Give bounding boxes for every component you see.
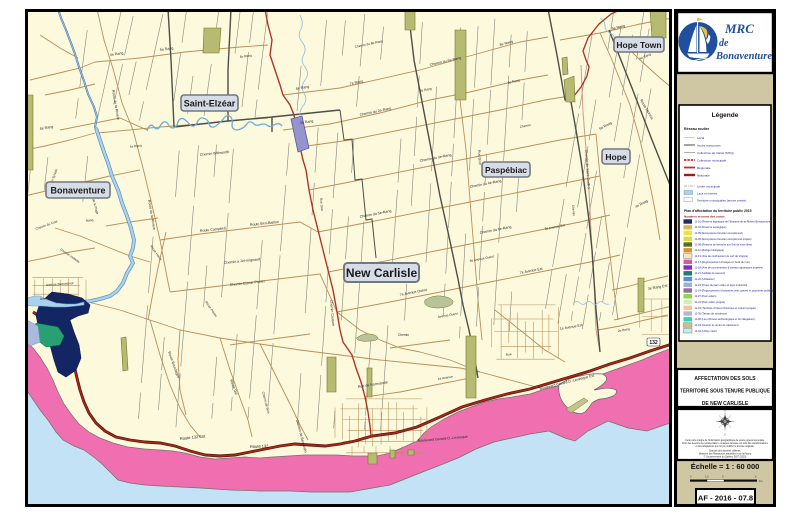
svg-text:AFFECTATION DES SOLS: AFFECTATION DES SOLS — [694, 376, 756, 382]
svg-text:11-33 (Territoire d'interet hi: 11-33 (Territoire d'interet historique e… — [695, 306, 757, 310]
svg-text:11-31 (Parc eolien projete): 11-31 (Parc eolien projete) — [695, 300, 726, 304]
svg-text:DE NEW CARLISLE: DE NEW CARLISLE — [702, 401, 749, 407]
svg-text:11-35 (Terrain de residence): 11-35 (Terrain de residence) — [695, 312, 728, 316]
svg-text:1,5: 1,5 — [705, 475, 709, 479]
svg-text:132: 132 — [649, 340, 658, 346]
svg-text:S: S — [724, 433, 726, 437]
svg-text:Chemin: Chemin — [398, 333, 409, 337]
svg-text:Hope Town: Hope Town — [616, 40, 661, 50]
svg-text:Collectrice municipale: Collectrice municipale — [697, 159, 727, 163]
svg-text:11-43 (Gravier et centre de tr: 11-43 (Gravier et centre de traitement) — [695, 323, 739, 327]
svg-text:11-13 (Aire de confinement du: 11-13 (Aire de confinement du cerf de Vi… — [695, 254, 749, 258]
svg-text:Échelle = 1 : 60 000: Échelle = 1 : 60 000 — [691, 462, 760, 471]
svg-text:Numéros et noms des zones: Numéros et noms des zones — [684, 215, 725, 219]
svg-text:MRC: MRC — [724, 21, 754, 36]
svg-text:TERRITOIRE SOUS TENURE PUBLIQU: TERRITOIRE SOUS TENURE PUBLIQUE — [680, 389, 771, 395]
svg-text:11-06 (Ecosysteme forestier ex: 11-06 (Ecosysteme forestier exceptionnel… — [695, 237, 752, 241]
svg-text:Accès ressources: Accès ressources — [697, 144, 721, 148]
svg-text:11-18 (Aire de concentration d: 11-18 (Aire de concentration d'oiseaux a… — [695, 266, 764, 270]
svg-text:New Carlisle: New Carlisle — [346, 266, 418, 280]
svg-text:Légende: Légende — [712, 112, 739, 119]
svg-text:Bonaventure: Bonaventure — [50, 186, 105, 196]
svg-text:Limite municipale: Limite municipale — [697, 185, 721, 189]
svg-text:AF - 2016 - 07.8: AF - 2016 - 07.8 — [698, 494, 753, 503]
svg-text:N: N — [724, 409, 726, 413]
svg-text:Réseau routier: Réseau routier — [684, 127, 710, 131]
svg-text:11-01 (Reserve aquatique de l': 11-01 (Reserve aquatique de l'Estuaire-d… — [695, 220, 772, 224]
svg-text:© Gouvernement du Québec SIGT: © Gouvernement du Québec SIGT (2015) — [704, 456, 747, 459]
svg-text:et des adaptations qui ont pu: et des adaptations qui ont pu modifier l… — [696, 445, 755, 448]
svg-text:Route 132: Route 132 — [250, 443, 269, 449]
svg-text:Plan d'affectation du territoi: Plan d'affectation du territoire public … — [684, 209, 752, 213]
svg-text:11-23 (Projet de parc eolien e: 11-23 (Projet de parc eolien et agro-ind… — [695, 283, 748, 287]
svg-text:Régionale: Régionale — [697, 166, 711, 170]
svg-text:11-24 (Regroupement d'industri: 11-24 (Regroupement d'industries avec gr… — [695, 289, 777, 293]
svg-text:Cette carte intègre de l'infor: Cette carte intègre de l'information géo… — [685, 439, 765, 442]
svg-text:Paspébiac: Paspébiac — [485, 165, 527, 175]
svg-text:Saint-Elzéar: Saint-Elzéar — [184, 99, 236, 109]
svg-text:11-27 (Parc eolien): 11-27 (Parc eolien) — [695, 294, 717, 298]
svg-text:Collectrice de transit (MTQ): Collectrice de transit (MTQ) — [697, 151, 734, 155]
svg-text:Sources des données utilisées:: Sources des données utilisées: — [709, 450, 741, 453]
svg-text:11-21 (Habitat du saumon): 11-21 (Habitat du saumon) — [695, 271, 726, 275]
svg-text:11-22 (Utilisation): 11-22 (Utilisation) — [695, 277, 715, 281]
svg-text:Local: Local — [697, 136, 705, 140]
svg-text:Bonaventure: Bonaventure — [715, 51, 772, 62]
svg-text:11-11 (Refuge biologique): 11-11 (Refuge biologique) — [695, 248, 725, 252]
svg-text:Hope: Hope — [605, 152, 627, 162]
svg-text:Nationale: Nationale — [697, 174, 710, 178]
svg-text:Ministère des Ressources natur: Ministère des Ressources naturelles et d… — [699, 453, 752, 456]
svg-text:Territoire municipalisé (tenur: Territoire municipalisé (tenure privée) — [697, 199, 746, 203]
svg-text:de: de — [719, 38, 729, 49]
svg-text:11-05 (Ecosysteme forestier ex: 11-05 (Ecosysteme forestier exceptionnel… — [695, 231, 744, 235]
svg-text:Lacs et rivières: Lacs et rivières — [697, 192, 718, 196]
svg-text:11-04 (Reserve ecologique): 11-04 (Reserve ecologique) — [695, 225, 727, 229]
svg-text:km: km — [759, 479, 762, 483]
svg-text:11-44 (Utility marin): 11-44 (Utility marin) — [695, 329, 718, 333]
svg-text:11-08 (Reserve de territoire a: 11-08 (Reserve de territoire aux fins de… — [695, 243, 753, 247]
svg-text:Pour des besoins de représenta: Pour des besoins de représentation, cert… — [682, 442, 769, 445]
svg-text:11-17 (Regroupement d'usages e: 11-17 (Regroupement d'usages en bord de … — [695, 260, 751, 264]
svg-text:11-36 (Lieu d'interet archeolo: 11-36 (Lieu d'interet archeologique et d… — [695, 317, 755, 321]
